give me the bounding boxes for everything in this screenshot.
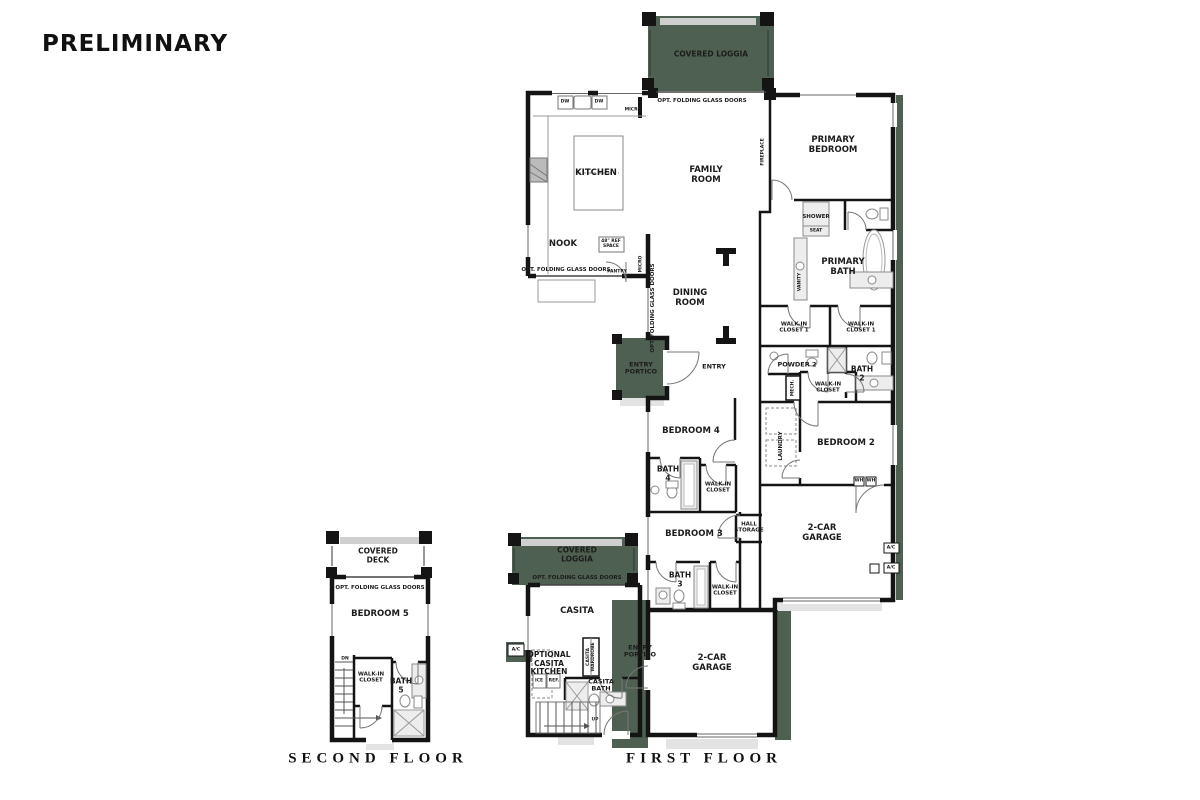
folding-doors-family-label: OPT. FOLDING GLASS DOORS <box>657 98 746 104</box>
dn-label: DN <box>341 656 349 661</box>
primary-bath-label: PRIMARY BATH <box>817 258 869 278</box>
bedroom-2-label: BEDROOM 2 <box>817 439 875 449</box>
second-floor-caption: SECOND FLOOR <box>288 751 468 768</box>
up-label: UP <box>592 717 599 722</box>
plan-status-title: PRELIMINARY <box>42 31 228 57</box>
folding-doors-dining-label: OPT. FOLDING GLASS DOORS <box>650 263 656 352</box>
micro-label-pantry: MICRO <box>638 256 643 273</box>
ac-label-1: A/C <box>887 545 895 550</box>
fireplace-label: FIREPLACE <box>760 138 765 165</box>
walk-in-closet-1-right-label: WALK-IN CLOSET 1 <box>845 322 877 335</box>
walk-in-closet-bed3-label: WALK-IN CLOSET <box>709 585 741 598</box>
walk-in-closet-hall-label: WALK-IN CLOSET <box>812 382 844 395</box>
ref-space-label: 48" REF SPACE <box>599 239 623 249</box>
dining-room-label: DINING ROOM <box>669 289 711 309</box>
seat-label: SEAT <box>810 228 823 233</box>
folding-doors-second-label: OPT. FOLDING GLASS DOORS <box>335 585 424 591</box>
ice-label: ICE <box>535 678 543 683</box>
wh-label-2: WH <box>867 478 876 483</box>
ref-label: REF. <box>549 678 560 683</box>
entry-portico-label-1: ENTRY PORTICO <box>621 362 661 377</box>
covered-loggia-casita-label: COVERED LOGGIA <box>551 546 603 563</box>
covered-deck-label: COVERED DECK <box>352 547 404 564</box>
covered-loggia-top-label: COVERED LOGGIA <box>674 51 748 60</box>
mech-label: MECH. <box>790 380 795 396</box>
bath-3-label: BATH 3 <box>667 571 693 588</box>
walk-in-closet-bed5-label: WALK-IN CLOSET <box>355 672 387 685</box>
garage-right-label: 2-CAR GARAGE <box>796 524 848 544</box>
floor-plan-canvas: PRELIMINARY COVERED LOGGIA OPT. FOLDING … <box>0 0 1200 800</box>
folding-doors-casita-label: OPT. FOLDING GLASS DOORS <box>532 575 621 581</box>
folding-doors-nook-label: OPT. FOLDING GLASS DOORS <box>521 267 610 273</box>
vanity-label: VANITY <box>797 273 802 291</box>
bath-4-label: BATH 4 <box>654 465 682 482</box>
first-floor-caption: FIRST FLOOR <box>626 751 782 768</box>
kitchen-label: KITCHEN <box>575 169 617 179</box>
casita-label: CASITA <box>560 607 594 617</box>
bath-2-label: BATH 2 <box>849 365 875 382</box>
family-room-label: FAMILY ROOM <box>685 166 727 186</box>
walk-in-closet-1-left-label: WALK-IN CLOSET 1 <box>778 322 810 335</box>
dishwasher-label-2: DW <box>595 99 604 104</box>
laundry-label: LAUNDRY <box>778 431 784 460</box>
primary-bedroom-label: PRIMARY BEDROOM <box>802 136 864 156</box>
shower-label: SHOWER <box>802 214 829 220</box>
micro-label-kitchen: MICRO <box>625 107 642 112</box>
bath-5-label: BATH 5 <box>388 677 414 694</box>
bedroom-3-label: BEDROOM 3 <box>665 530 723 540</box>
casita-wardrobe-label: CASITA WARDROBE <box>586 638 596 676</box>
garage-bottom-label: 2-CAR GARAGE <box>686 654 738 674</box>
wh-label-1: WH <box>855 478 864 483</box>
casita-bath-label: CASITA BATH <box>585 679 617 694</box>
bedroom-5-label: BEDROOM 5 <box>351 610 409 620</box>
hall-storage-label: HALL STORAGE <box>734 522 764 535</box>
entry-portico-label-2: ENTRY PORTICO <box>620 645 660 660</box>
nook-label: NOOK <box>549 240 577 250</box>
optional-casita-kitchen-label: OPTIONAL CASITA KITCHEN <box>522 651 576 677</box>
dishwasher-label-1: DW <box>561 99 570 104</box>
powder-2-label: POWDER 2 <box>777 361 816 368</box>
entry-label: ENTRY <box>702 363 726 370</box>
ac-label-casita: A/C <box>512 647 520 652</box>
ac-label-2: A/C <box>887 565 895 570</box>
bedroom-4-label: BEDROOM 4 <box>662 427 720 437</box>
walk-in-closet-bed4-label: WALK-IN CLOSET <box>702 482 734 495</box>
